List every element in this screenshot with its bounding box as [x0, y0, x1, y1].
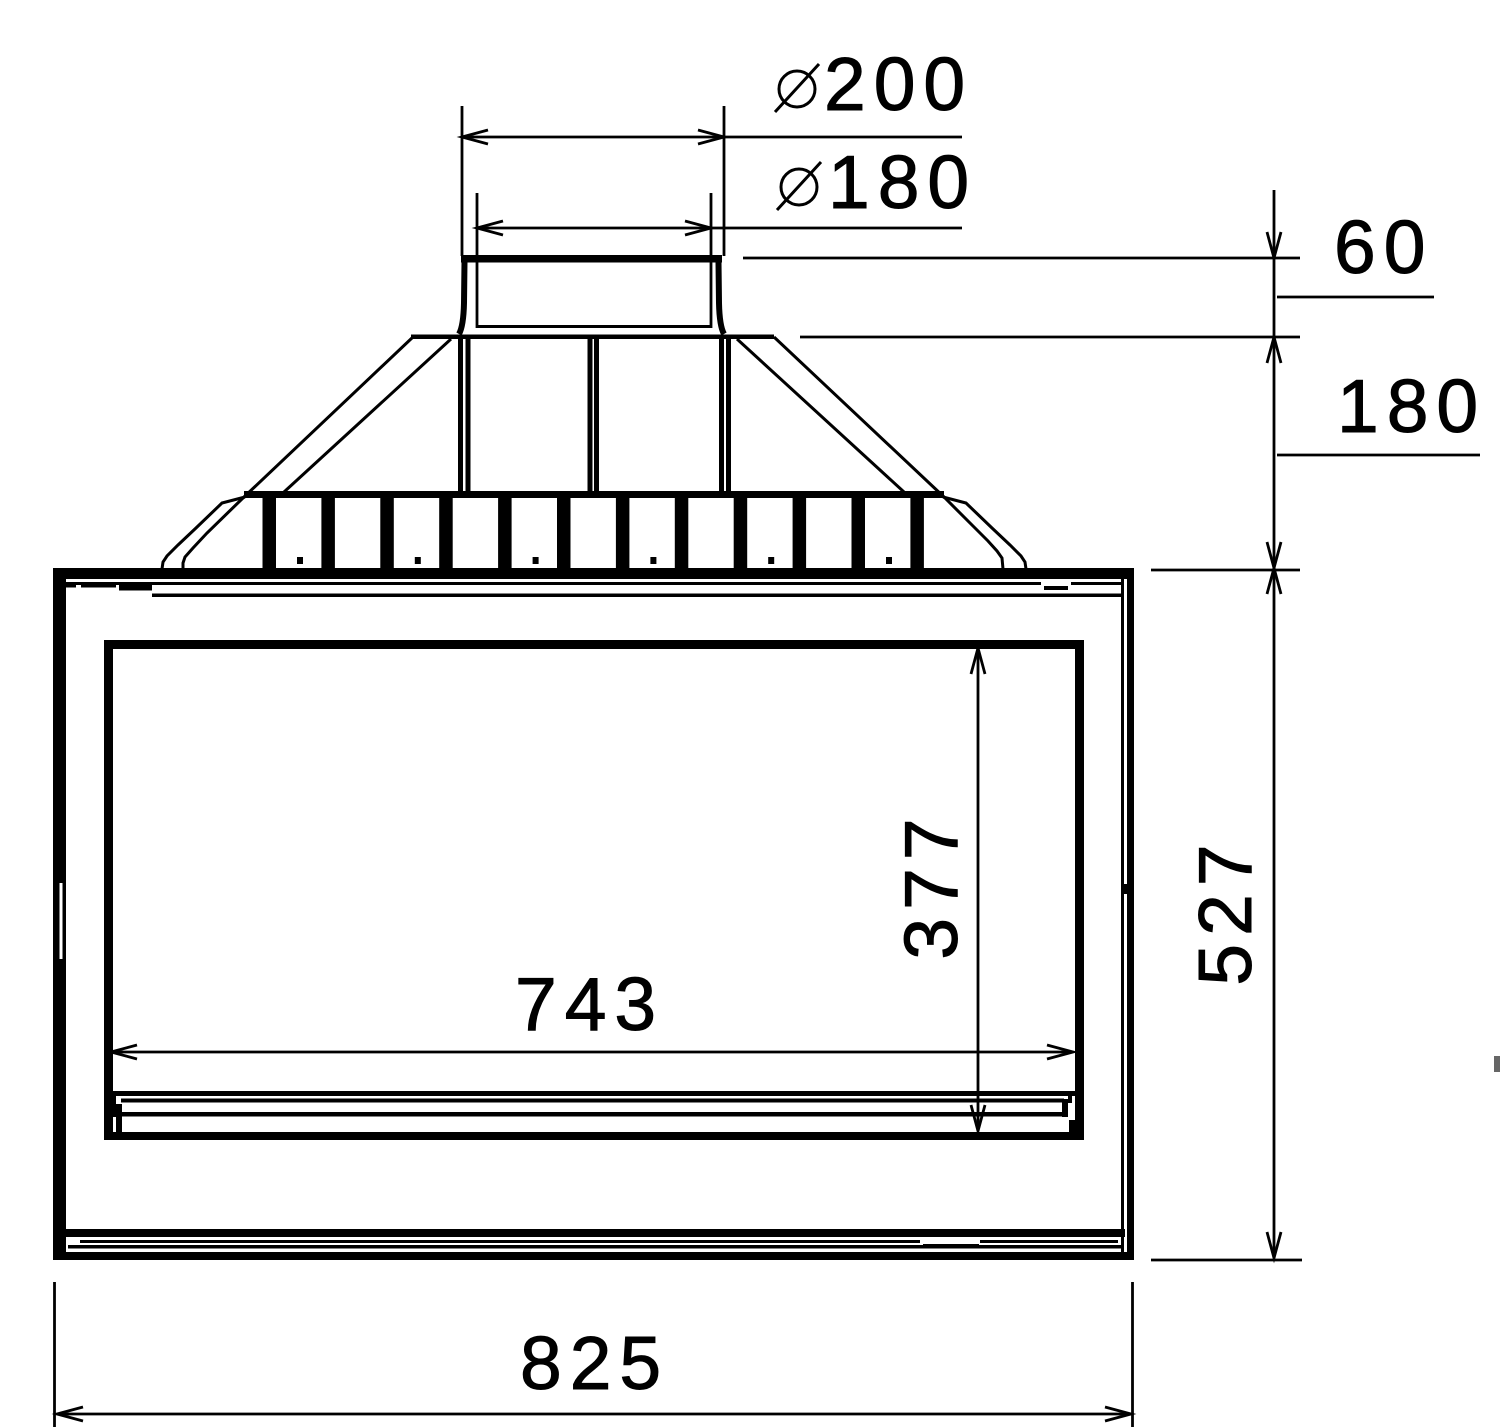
- svg-text:200: 200: [824, 42, 973, 126]
- svg-text:180: 180: [1337, 364, 1486, 448]
- svg-text:180: 180: [828, 140, 977, 224]
- svg-text:825: 825: [520, 1321, 669, 1405]
- svg-text:743: 743: [515, 962, 664, 1046]
- svg-text:527: 527: [1183, 836, 1267, 985]
- svg-text:60: 60: [1334, 205, 1433, 289]
- svg-text:377: 377: [889, 810, 973, 959]
